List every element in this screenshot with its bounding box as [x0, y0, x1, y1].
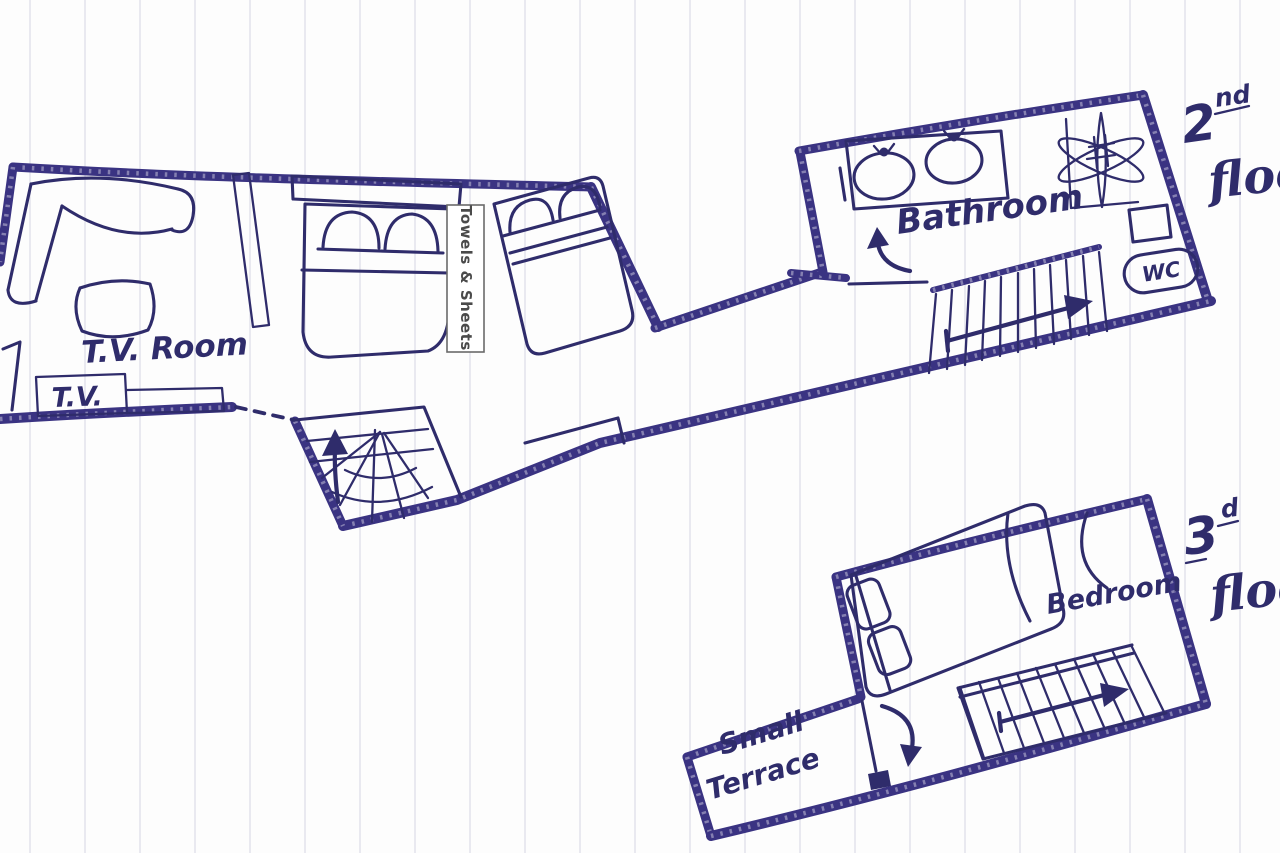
second-floor-number: 2	[1178, 93, 1221, 155]
bedroom-label: Bedroom	[1044, 567, 1184, 621]
third-floor-suffix: d	[1219, 493, 1242, 524]
wc-label: WC	[1140, 257, 1182, 287]
couch-icon	[8, 178, 194, 303]
corridor-opening-line	[849, 282, 927, 284]
bedroom-door-arc	[1082, 513, 1107, 588]
door-leaf-line	[862, 701, 876, 771]
cushion-icon	[76, 281, 154, 337]
floor-plan-sketch: Towels & Sheets	[0, 0, 1280, 853]
sink-icon-1	[852, 150, 916, 202]
double-bed-icon-3	[851, 505, 1064, 696]
third-floor-word: floor	[1204, 555, 1280, 624]
second-floor-suffix: nd	[1213, 79, 1253, 113]
double-bed-icon-2	[494, 177, 633, 354]
cistern-box	[1129, 205, 1171, 242]
third-floor-number: 3	[1180, 505, 1223, 567]
stairs-up-arrow	[335, 448, 338, 502]
stairs-up-arrowhead	[322, 429, 348, 456]
door-swing-arrow	[882, 706, 913, 748]
bathroom-entry-arrowhead	[867, 227, 889, 249]
second-floor: Towels & Sheets	[0, 79, 1280, 526]
third-floor: Bedroom Small Terrace 3 d floor	[687, 493, 1280, 836]
tv-room	[8, 173, 269, 416]
second-floor-tag: 2 nd floor	[1178, 79, 1280, 210]
towels-sheets-box: Towels & Sheets	[447, 205, 484, 352]
double-bed-icon-1	[302, 204, 452, 357]
stairs-direction-arrow	[1000, 694, 1108, 722]
floor-plan-canvas: Towels & Sheets	[0, 0, 1280, 853]
tv-label: T.V.	[51, 381, 103, 414]
sink-icon-2	[924, 136, 984, 186]
second-floor-walls	[0, 95, 1211, 526]
tv-room-label: T.V. Room	[81, 326, 249, 371]
beds-area: Towels & Sheets	[292, 176, 633, 357]
dashed-opening	[236, 407, 294, 420]
terrace-door	[862, 701, 922, 790]
bathroom-entry-arrow	[878, 244, 910, 271]
wall-stub	[3, 342, 20, 410]
counter-end	[840, 168, 845, 200]
second-floor-word: floor	[1202, 141, 1280, 210]
towels-sheets-label: Towels & Sheets	[457, 205, 475, 351]
bathroom-label: Bathroom	[894, 177, 1086, 243]
third-floor-tag: 3 d floor	[1180, 493, 1280, 625]
